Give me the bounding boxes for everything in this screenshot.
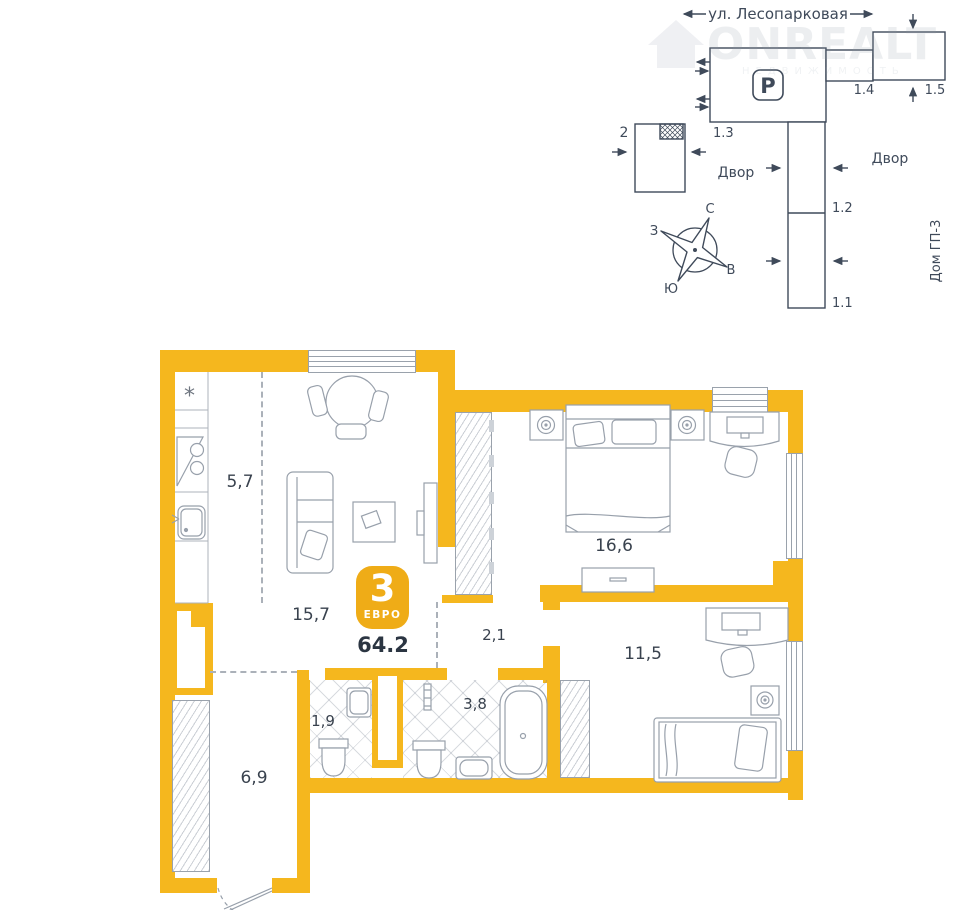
parking-icon: P: [753, 70, 783, 100]
building-1-5-label: 1.5: [925, 83, 946, 98]
rooms-count: 3: [356, 569, 409, 609]
compass-rose: С З В Ю: [650, 202, 736, 297]
dining-set: [307, 376, 390, 439]
building-2-label: 2: [620, 125, 629, 141]
yard-label-left: Двор: [718, 165, 755, 181]
compass-west: З: [650, 224, 658, 239]
living-area-label: 15,7: [281, 605, 341, 625]
yard-label-right: Двор: [872, 151, 909, 167]
wardrobe-handles: [489, 420, 494, 574]
compass-south: Ю: [664, 282, 678, 297]
hall-area-label: 6,9: [228, 768, 280, 788]
tv-unit: [417, 483, 437, 563]
fridge-icon: *: [184, 384, 195, 409]
apartment-type: ЕВРО: [356, 609, 409, 621]
sofa: [287, 472, 333, 573]
wc-area-label: 1,9: [301, 712, 345, 730]
building-1-2-label: 1.2: [832, 201, 853, 216]
compass-east: В: [727, 263, 736, 278]
kitchen-area-label: 5,7: [215, 472, 265, 492]
svg-text:P: P: [760, 74, 775, 98]
furniture-layer: [150, 340, 810, 910]
building-1-1-label: 1.1: [832, 296, 853, 311]
entrance-door: [218, 888, 272, 910]
building-1-4-label: 1.4: [854, 83, 875, 98]
floorplan-canvas: P С З В Ю ул. Лесо: [0, 0, 960, 910]
bedroom-area-label: 16,6: [584, 536, 644, 556]
bath-area-label: 3,8: [453, 695, 497, 713]
apartment-type-badge: 3 ЕВРО: [356, 566, 409, 629]
compass-north: С: [705, 202, 714, 217]
wc-fixtures: [319, 688, 371, 776]
building-1-3-label: 1.3: [713, 126, 734, 141]
gp3-label: Дом ГП-3: [929, 220, 944, 283]
room2-furniture: [654, 608, 788, 782]
bedroom-furniture: [530, 405, 779, 592]
site-plan: P С З В Ю ул. Лесо: [600, 0, 960, 330]
total-area: 64.2: [348, 633, 418, 657]
corridor-area-label: 2,1: [468, 626, 520, 644]
coffee-table: [353, 502, 395, 542]
room2-area-label: 11,5: [612, 644, 674, 664]
street-label: ул. Лесопарковая: [708, 5, 848, 23]
